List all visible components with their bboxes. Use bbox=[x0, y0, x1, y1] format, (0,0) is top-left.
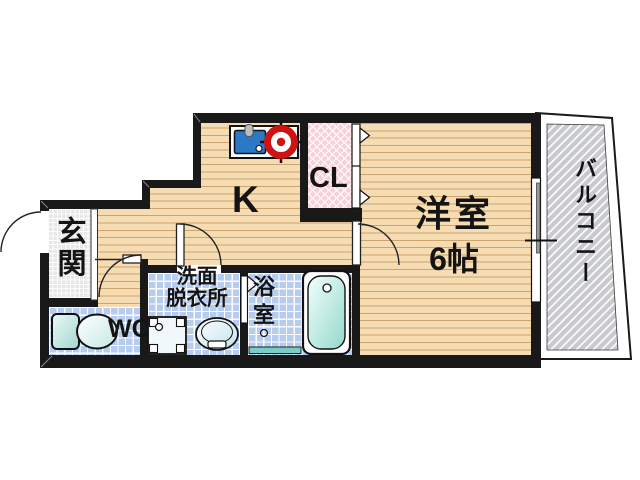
room-door-swing-icon bbox=[353, 221, 400, 265]
fixtures-layer bbox=[0, 0, 640, 480]
genkan-label: 玄関 bbox=[54, 216, 83, 280]
closet-label: CL bbox=[309, 164, 348, 193]
genkan-step bbox=[91, 209, 98, 300]
western-room-label: 洋室 bbox=[395, 196, 513, 232]
wash-basin-icon bbox=[196, 318, 238, 350]
bathtub-icon bbox=[303, 271, 350, 354]
wc-door-swing-icon bbox=[95, 255, 141, 297]
washroom-label: 洗面 脱衣所 bbox=[155, 266, 239, 310]
balcony-label: バルコニー bbox=[573, 157, 595, 287]
sliding-window-icon bbox=[525, 178, 557, 302]
closet-folding-door-icon bbox=[352, 124, 370, 208]
washroom-door-swing-icon bbox=[177, 224, 222, 266]
entrance-door-swing-icon bbox=[1, 212, 41, 252]
washing-machine-icon bbox=[148, 317, 186, 354]
bathroom-label: 浴室 bbox=[251, 275, 273, 331]
western-room-size-label: 6帖 bbox=[395, 243, 513, 275]
floor-plan-canvas: 玄関 WC 洗面 脱衣所 浴室 K CL 洋室 6帖 バルコニー bbox=[0, 0, 640, 480]
kitchen-label: K bbox=[232, 181, 259, 218]
bath-threshold bbox=[249, 347, 301, 354]
wc-label: WC bbox=[108, 317, 150, 342]
kitchen-counter bbox=[230, 121, 302, 163]
